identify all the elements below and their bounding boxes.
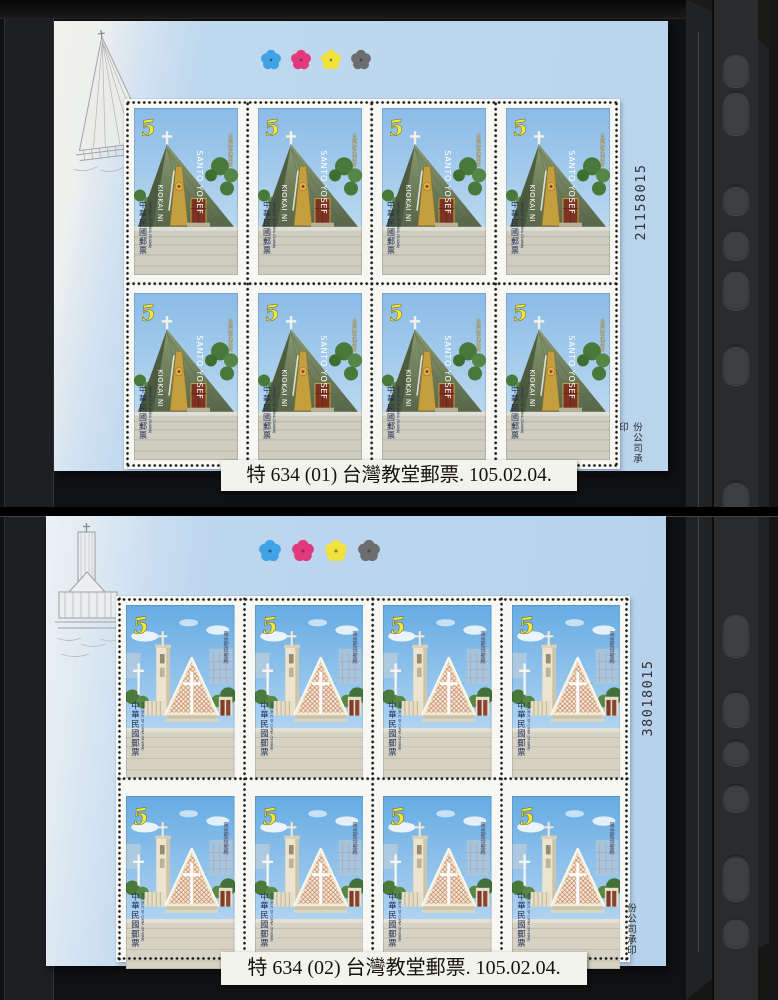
stamp: SANTO YOSEF KIOKAI NI 金崙聖若瑟堂 5 中華民國郵票 RE… xyxy=(372,99,496,284)
stamp: 萬金聖母聖殿 5 中華民國郵票 REPUBLIC OF CHINA (TAIWA… xyxy=(116,787,245,978)
stamp-art-tower-church: 萬金聖母聖殿 5 中華民國郵票 REPUBLIC OF CHINA (TAIWA… xyxy=(512,796,621,969)
perforation-column xyxy=(245,100,250,468)
stockbook-top-bar xyxy=(0,0,778,19)
stamp-art-tower-church: 萬金聖母聖殿 5 中華民國郵票 REPUBLIC OF CHINA (TAIWA… xyxy=(512,605,621,778)
stamp-country-latin: REPUBLIC OF CHINA (TAIWAN) xyxy=(272,387,276,434)
stamp-church-name: 金崙聖若瑟堂 xyxy=(226,317,233,352)
stamp-country-latin: REPUBLIC OF CHINA (TAIWAN) xyxy=(148,387,152,434)
stamp-art-tower-church: 萬金聖母聖殿 5 中華民國郵票 REPUBLIC OF CHINA (TAIWA… xyxy=(126,796,235,969)
caption-label-1: 特 634 (01) 台灣教堂郵票. 105.02.04. xyxy=(221,460,577,491)
stamp: SANTO YOSEF KIOKAI NI 金崙聖若瑟堂 5 中華民國郵票 RE… xyxy=(372,284,496,469)
stamp: 萬金聖母聖殿 5 中華民國郵票 REPUBLIC OF CHINA (TAIWA… xyxy=(373,596,502,787)
stamp: SANTO YOSEF KIOKAI NI 金崙聖若瑟堂 5 中華民國郵票 RE… xyxy=(124,284,248,469)
printer-imprint: 份公司承印 xyxy=(615,422,643,471)
perforation-column xyxy=(370,597,375,961)
stamp-church-name: 金崙聖若瑟堂 xyxy=(598,317,605,352)
plum-blossom-color-dot-icon xyxy=(258,539,282,563)
stamp-church-name: 金崙聖若瑟堂 xyxy=(598,132,605,167)
stamp-church-name: 萬金聖母聖殿 xyxy=(351,630,358,665)
perforation-column xyxy=(369,100,374,468)
binder-hole xyxy=(722,185,750,215)
stamp-church-name: 金崙聖若瑟堂 xyxy=(226,132,233,167)
binder-hole xyxy=(722,784,750,812)
stamp-country-latin: REPUBLIC OF CHINA (TAIWAN) xyxy=(269,893,273,941)
stamp-church-name: 萬金聖母聖殿 xyxy=(608,630,615,665)
stamp-inscription-santo-yosef: SANTO YOSEF xyxy=(567,335,577,399)
perforation-column xyxy=(125,100,130,468)
binder-hole xyxy=(722,53,750,87)
stamp-art-pyramid-church: SANTO YOSEF KIOKAI NI 金崙聖若瑟堂 5 中華民國郵票 RE… xyxy=(134,293,238,460)
binder-hole xyxy=(722,230,750,260)
stamp-art-tower-church: 萬金聖母聖殿 5 中華民國郵票 REPUBLIC OF CHINA (TAIWA… xyxy=(255,605,364,778)
stockbook-right-margin xyxy=(686,0,778,1000)
stamp-country-latin: REPUBLIC OF CHINA (TAIWAN) xyxy=(520,387,524,434)
stamp-inscription-kiokai-ni: KIOKAI NI xyxy=(404,184,413,222)
stamp-country-latin: REPUBLIC OF CHINA (TAIWAN) xyxy=(396,202,400,249)
stamp: 萬金聖母聖殿 5 中華民國郵票 REPUBLIC OF CHINA (TAIWA… xyxy=(245,596,374,787)
binder-hole xyxy=(722,855,750,901)
stamp-inscription-santo-yosef: SANTO YOSEF xyxy=(319,150,329,214)
stamp-country-cjk: 中華民國郵票 xyxy=(130,891,140,948)
plum-blossom-color-dot-icon xyxy=(291,539,315,563)
plum-blossom-color-dot-icon xyxy=(290,49,312,71)
stamp-art-pyramid-church: SANTO YOSEF KIOKAI NI 金崙聖若瑟堂 5 中華民國郵票 RE… xyxy=(258,108,362,275)
stamp-art-tower-church: 萬金聖母聖殿 5 中華民國郵票 REPUBLIC OF CHINA (TAIWA… xyxy=(255,796,364,969)
stamp-country-latin: REPUBLIC OF CHINA (TAIWAN) xyxy=(269,702,273,750)
plum-blossom-color-dot-icon xyxy=(350,49,372,71)
plum-blossom-color-dot-icon xyxy=(320,49,342,71)
stamp-art-pyramid-church: SANTO YOSEF KIOKAI NI 金崙聖若瑟堂 5 中華民國郵票 RE… xyxy=(134,108,238,275)
binder-hole xyxy=(722,740,750,766)
stamp: 萬金聖母聖殿 5 中華民國郵票 REPUBLIC OF CHINA (TAIWA… xyxy=(116,596,245,787)
stamp-art-pyramid-church: SANTO YOSEF KIOKAI NI 金崙聖若瑟堂 5 中華民國郵票 RE… xyxy=(258,293,362,460)
stamp-church-name: 萬金聖母聖殿 xyxy=(222,630,229,665)
stamp: SANTO YOSEF KIOKAI NI 金崙聖若瑟堂 5 中華民國郵票 RE… xyxy=(248,99,372,284)
perforation-column xyxy=(117,597,122,961)
stamp-country-latin: REPUBLIC OF CHINA (TAIWAN) xyxy=(398,702,402,750)
perforation-column xyxy=(242,597,247,961)
stamp-church-name: 萬金聖母聖殿 xyxy=(222,821,229,856)
stamp-church-name: 金崙聖若瑟堂 xyxy=(350,132,357,167)
stamp-country-latin: REPUBLIC OF CHINA (TAIWAN) xyxy=(396,387,400,434)
stamp-art-pyramid-church: SANTO YOSEF KIOKAI NI 金崙聖若瑟堂 5 中華民國郵票 RE… xyxy=(506,293,610,460)
stamp-country-cjk: 中華民國郵票 xyxy=(387,700,397,757)
stamp-inscription-kiokai-ni: KIOKAI NI xyxy=(528,369,537,407)
stamp-church-name: 萬金聖母聖殿 xyxy=(479,630,486,665)
stamp-church-name: 萬金聖母聖殿 xyxy=(479,821,486,856)
color-check-marks xyxy=(258,539,381,563)
stamp: SANTO YOSEF KIOKAI NI 金崙聖若瑟堂 5 中華民國郵票 RE… xyxy=(496,99,620,284)
stamp-country-latin: REPUBLIC OF CHINA (TAIWAN) xyxy=(526,893,530,941)
stamp-church-name: 萬金聖母聖殿 xyxy=(608,821,615,856)
stamp: 萬金聖母聖殿 5 中華民國郵票 REPUBLIC OF CHINA (TAIWA… xyxy=(502,787,631,978)
binder-hole xyxy=(722,613,750,657)
binder-hole xyxy=(722,918,750,948)
stamp-country-cjk: 中華民國郵票 xyxy=(387,385,396,440)
perforation-column xyxy=(624,597,629,961)
stamp: SANTO YOSEF KIOKAI NI 金崙聖若瑟堂 5 中華民國郵票 RE… xyxy=(124,99,248,284)
stamp-country-cjk: 中華民國郵票 xyxy=(387,200,396,255)
stamp-inscription-santo-yosef: SANTO YOSEF xyxy=(195,335,205,399)
stamp-inscription-santo-yosef: SANTO YOSEF xyxy=(443,335,453,399)
stamp-block-2: 萬金聖母聖殿 5 中華民國郵票 REPUBLIC OF CHINA (TAIWA… xyxy=(116,596,630,962)
plum-blossom-color-dot-icon xyxy=(260,49,282,71)
stamp-country-cjk: 中華民國郵票 xyxy=(511,385,520,440)
stamp-country-cjk: 中華民國郵票 xyxy=(263,200,272,255)
stamp-country-cjk: 中華民國郵票 xyxy=(259,891,269,948)
stamp-inscription-kiokai-ni: KIOKAI NI xyxy=(156,184,165,222)
stamp: 萬金聖母聖殿 5 中華民國郵票 REPUBLIC OF CHINA (TAIWA… xyxy=(245,787,374,978)
plum-blossom-color-dot-icon xyxy=(324,539,348,563)
stamp-inscription-santo-yosef: SANTO YOSEF xyxy=(319,335,329,399)
stamp-country-latin: REPUBLIC OF CHINA (TAIWAN) xyxy=(148,202,152,249)
sheet-serial-number: 21158015 xyxy=(633,160,649,244)
stamp-country-latin: REPUBLIC OF CHINA (TAIWAN) xyxy=(520,202,524,249)
stamp-country-cjk: 中華民國郵票 xyxy=(511,200,520,255)
stamp: 萬金聖母聖殿 5 中華民國郵票 REPUBLIC OF CHINA (TAIWA… xyxy=(502,596,631,787)
binder-hole xyxy=(722,91,750,135)
plum-blossom-color-dot-icon xyxy=(357,539,381,563)
perforation-column xyxy=(614,100,619,468)
stamp-country-latin: REPUBLIC OF CHINA (TAIWAN) xyxy=(141,702,145,750)
stamp-church-name: 金崙聖若瑟堂 xyxy=(474,317,481,352)
stamp-inscription-kiokai-ni: KIOKAI NI xyxy=(528,184,537,222)
stamp-country-latin: REPUBLIC OF CHINA (TAIWAN) xyxy=(141,893,145,941)
stamp-art-pyramid-church: SANTO YOSEF KIOKAI NI 金崙聖若瑟堂 5 中華民國郵票 RE… xyxy=(382,293,486,460)
stamp-inscription-kiokai-ni: KIOKAI NI xyxy=(404,369,413,407)
stamp-country-latin: REPUBLIC OF CHINA (TAIWAN) xyxy=(398,893,402,941)
stamp-country-latin: REPUBLIC OF CHINA (TAIWAN) xyxy=(272,202,276,249)
stamp-country-latin: REPUBLIC OF CHINA (TAIWAN) xyxy=(526,702,530,750)
stamp-church-name: 金崙聖若瑟堂 xyxy=(350,317,357,352)
stockbook-photo: SANTO YOSEF KIOKAI NI 金崙聖若瑟堂 5 中華民國郵票 RE… xyxy=(0,0,778,1000)
stamp-art-tower-church: 萬金聖母聖殿 5 中華民國郵票 REPUBLIC OF CHINA (TAIWA… xyxy=(383,605,492,778)
sheet-serial-number: 38018015 xyxy=(640,656,656,740)
stamp-art-pyramid-church: SANTO YOSEF KIOKAI NI 金崙聖若瑟堂 5 中華民國郵票 RE… xyxy=(382,108,486,275)
stamp-country-cjk: 中華民國郵票 xyxy=(516,700,526,757)
stamp-church-name: 萬金聖母聖殿 xyxy=(351,821,358,856)
stamp-country-cjk: 中華民國郵票 xyxy=(387,891,397,948)
perforation-column xyxy=(493,100,498,468)
stamp-country-cjk: 中華民國郵票 xyxy=(516,891,526,948)
color-check-marks xyxy=(260,49,372,71)
stamp-inscription-kiokai-ni: KIOKAI NI xyxy=(156,369,165,407)
page-right-edge xyxy=(769,0,778,1000)
stamp-country-cjk: 中華民國郵票 xyxy=(263,385,272,440)
stamp: 萬金聖母聖殿 5 中華民國郵票 REPUBLIC OF CHINA (TAIWA… xyxy=(373,787,502,978)
stamp-inscription-santo-yosef: SANTO YOSEF xyxy=(567,150,577,214)
binder-strip xyxy=(712,0,758,1000)
stamp: SANTO YOSEF KIOKAI NI 金崙聖若瑟堂 5 中華民國郵票 RE… xyxy=(248,284,372,469)
stamp-sheet-1: SANTO YOSEF KIOKAI NI 金崙聖若瑟堂 5 中華民國郵票 RE… xyxy=(54,21,668,471)
stamp-art-tower-church: 萬金聖母聖殿 5 中華民國郵票 REPUBLIC OF CHINA (TAIWA… xyxy=(126,605,235,778)
stamp-country-cjk: 中華民國郵票 xyxy=(139,385,148,440)
stamp-inscription-santo-yosef: SANTO YOSEF xyxy=(195,150,205,214)
stamp: SANTO YOSEF KIOKAI NI 金崙聖若瑟堂 5 中華民國郵票 RE… xyxy=(496,284,620,469)
binder-hole xyxy=(722,270,750,310)
stamp-sheet-2: 萬金聖母聖殿 5 中華民國郵票 REPUBLIC OF CHINA (TAIWA… xyxy=(46,516,666,966)
stamp-inscription-kiokai-ni: KIOKAI NI xyxy=(280,184,289,222)
stamp-country-cjk: 中華民國郵票 xyxy=(130,700,140,757)
caption-label-2: 特 634 (02) 台灣教堂郵票. 105.02.04. xyxy=(221,952,587,985)
stamp-inscription-santo-yosef: SANTO YOSEF xyxy=(443,150,453,214)
binder-hole xyxy=(722,691,750,727)
perforation-column xyxy=(499,597,504,961)
stamp-church-name: 金崙聖若瑟堂 xyxy=(474,132,481,167)
stamp-art-pyramid-church: SANTO YOSEF KIOKAI NI 金崙聖若瑟堂 5 中華民國郵票 RE… xyxy=(506,108,610,275)
stamp-country-cjk: 中華民國郵票 xyxy=(259,700,269,757)
stamp-country-cjk: 中華民國郵票 xyxy=(139,200,148,255)
film-edge-line xyxy=(698,32,699,952)
binder-hole xyxy=(722,345,750,385)
stamp-inscription-kiokai-ni: KIOKAI NI xyxy=(280,369,289,407)
stamp-block-1: SANTO YOSEF KIOKAI NI 金崙聖若瑟堂 5 中華民國郵票 RE… xyxy=(124,99,620,469)
stamp-art-tower-church: 萬金聖母聖殿 5 中華民國郵票 REPUBLIC OF CHINA (TAIWA… xyxy=(383,796,492,969)
